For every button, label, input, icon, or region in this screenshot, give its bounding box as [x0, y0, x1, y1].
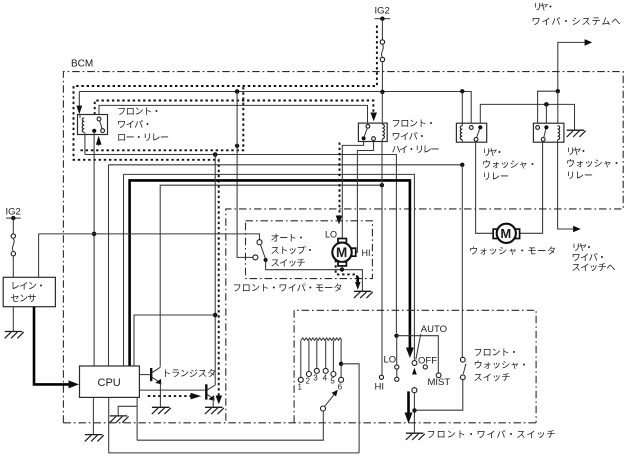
svg-text:リヤ・: リヤ・ [482, 148, 504, 158]
svg-text:3: 3 [313, 374, 318, 383]
svg-text:BCM: BCM [71, 59, 93, 70]
svg-text:フロント・: フロント・ [392, 119, 436, 129]
svg-text:HI: HI [375, 382, 385, 393]
svg-text:オート・: オート・ [271, 233, 306, 243]
svg-text:レイン・: レイン・ [11, 281, 46, 291]
svg-text:OFF: OFF [418, 356, 437, 367]
svg-text:ウォッシャ・モータ: ウォッシャ・モータ [469, 246, 556, 256]
svg-text:MIST: MIST [428, 377, 451, 388]
svg-text:スイッチ: スイッチ [474, 372, 511, 382]
svg-text:センサ: センサ [11, 294, 37, 304]
svg-text:LO: LO [384, 355, 397, 366]
svg-text:ワイパ・システムへ: ワイパ・システムへ [532, 17, 621, 27]
svg-text:ワイパ・: ワイパ・ [572, 253, 607, 263]
svg-text:フロント・ワイパ・スイッチ: フロント・ワイパ・スイッチ [427, 430, 556, 440]
svg-text:HI: HI [362, 248, 371, 258]
svg-text:フロント・ワイパ・モータ: フロント・ワイパ・モータ [233, 283, 343, 293]
svg-text:6: 6 [338, 383, 343, 392]
svg-text:ロー・リレー: ロー・リレー [117, 133, 169, 143]
svg-text:トランジスタ: トランジスタ [162, 369, 216, 379]
svg-text:ウォッシャ・: ウォッシャ・ [566, 159, 621, 169]
svg-text:IG2: IG2 [375, 6, 390, 17]
svg-text:AUTO: AUTO [421, 324, 447, 335]
svg-text:ハイ・リレー: ハイ・リレー [392, 145, 440, 155]
svg-text:IG2: IG2 [6, 207, 21, 218]
svg-text:フロント・: フロント・ [474, 348, 519, 358]
svg-text:1: 1 [298, 383, 303, 392]
svg-text:スイッチへ: スイッチへ [572, 263, 616, 273]
svg-text:リヤ・: リヤ・ [566, 147, 588, 157]
svg-text:M: M [336, 245, 347, 260]
svg-text:リヤ・: リヤ・ [533, 2, 555, 12]
svg-text:リヤ・: リヤ・ [572, 243, 594, 253]
svg-text:リレー: リレー [566, 171, 593, 181]
svg-text:ウォッシャ・: ウォッシャ・ [474, 360, 529, 370]
svg-text:ワイパ・: ワイパ・ [117, 120, 152, 130]
svg-text:ワイパ・: ワイパ・ [392, 132, 427, 142]
svg-text:CPU: CPU [98, 377, 121, 389]
svg-text:ウォッシャ・: ウォッシャ・ [482, 160, 537, 170]
svg-text:4: 4 [323, 374, 328, 383]
svg-text:LO: LO [325, 230, 337, 240]
svg-text:フロント・: フロント・ [117, 107, 161, 117]
svg-text:M: M [500, 226, 511, 241]
svg-text:スイッチ: スイッチ [271, 258, 306, 268]
svg-text:2: 2 [306, 377, 311, 386]
svg-text:ストップ・: ストップ・ [271, 246, 315, 256]
svg-text:リレー: リレー [482, 172, 509, 182]
svg-text:5: 5 [330, 377, 335, 386]
